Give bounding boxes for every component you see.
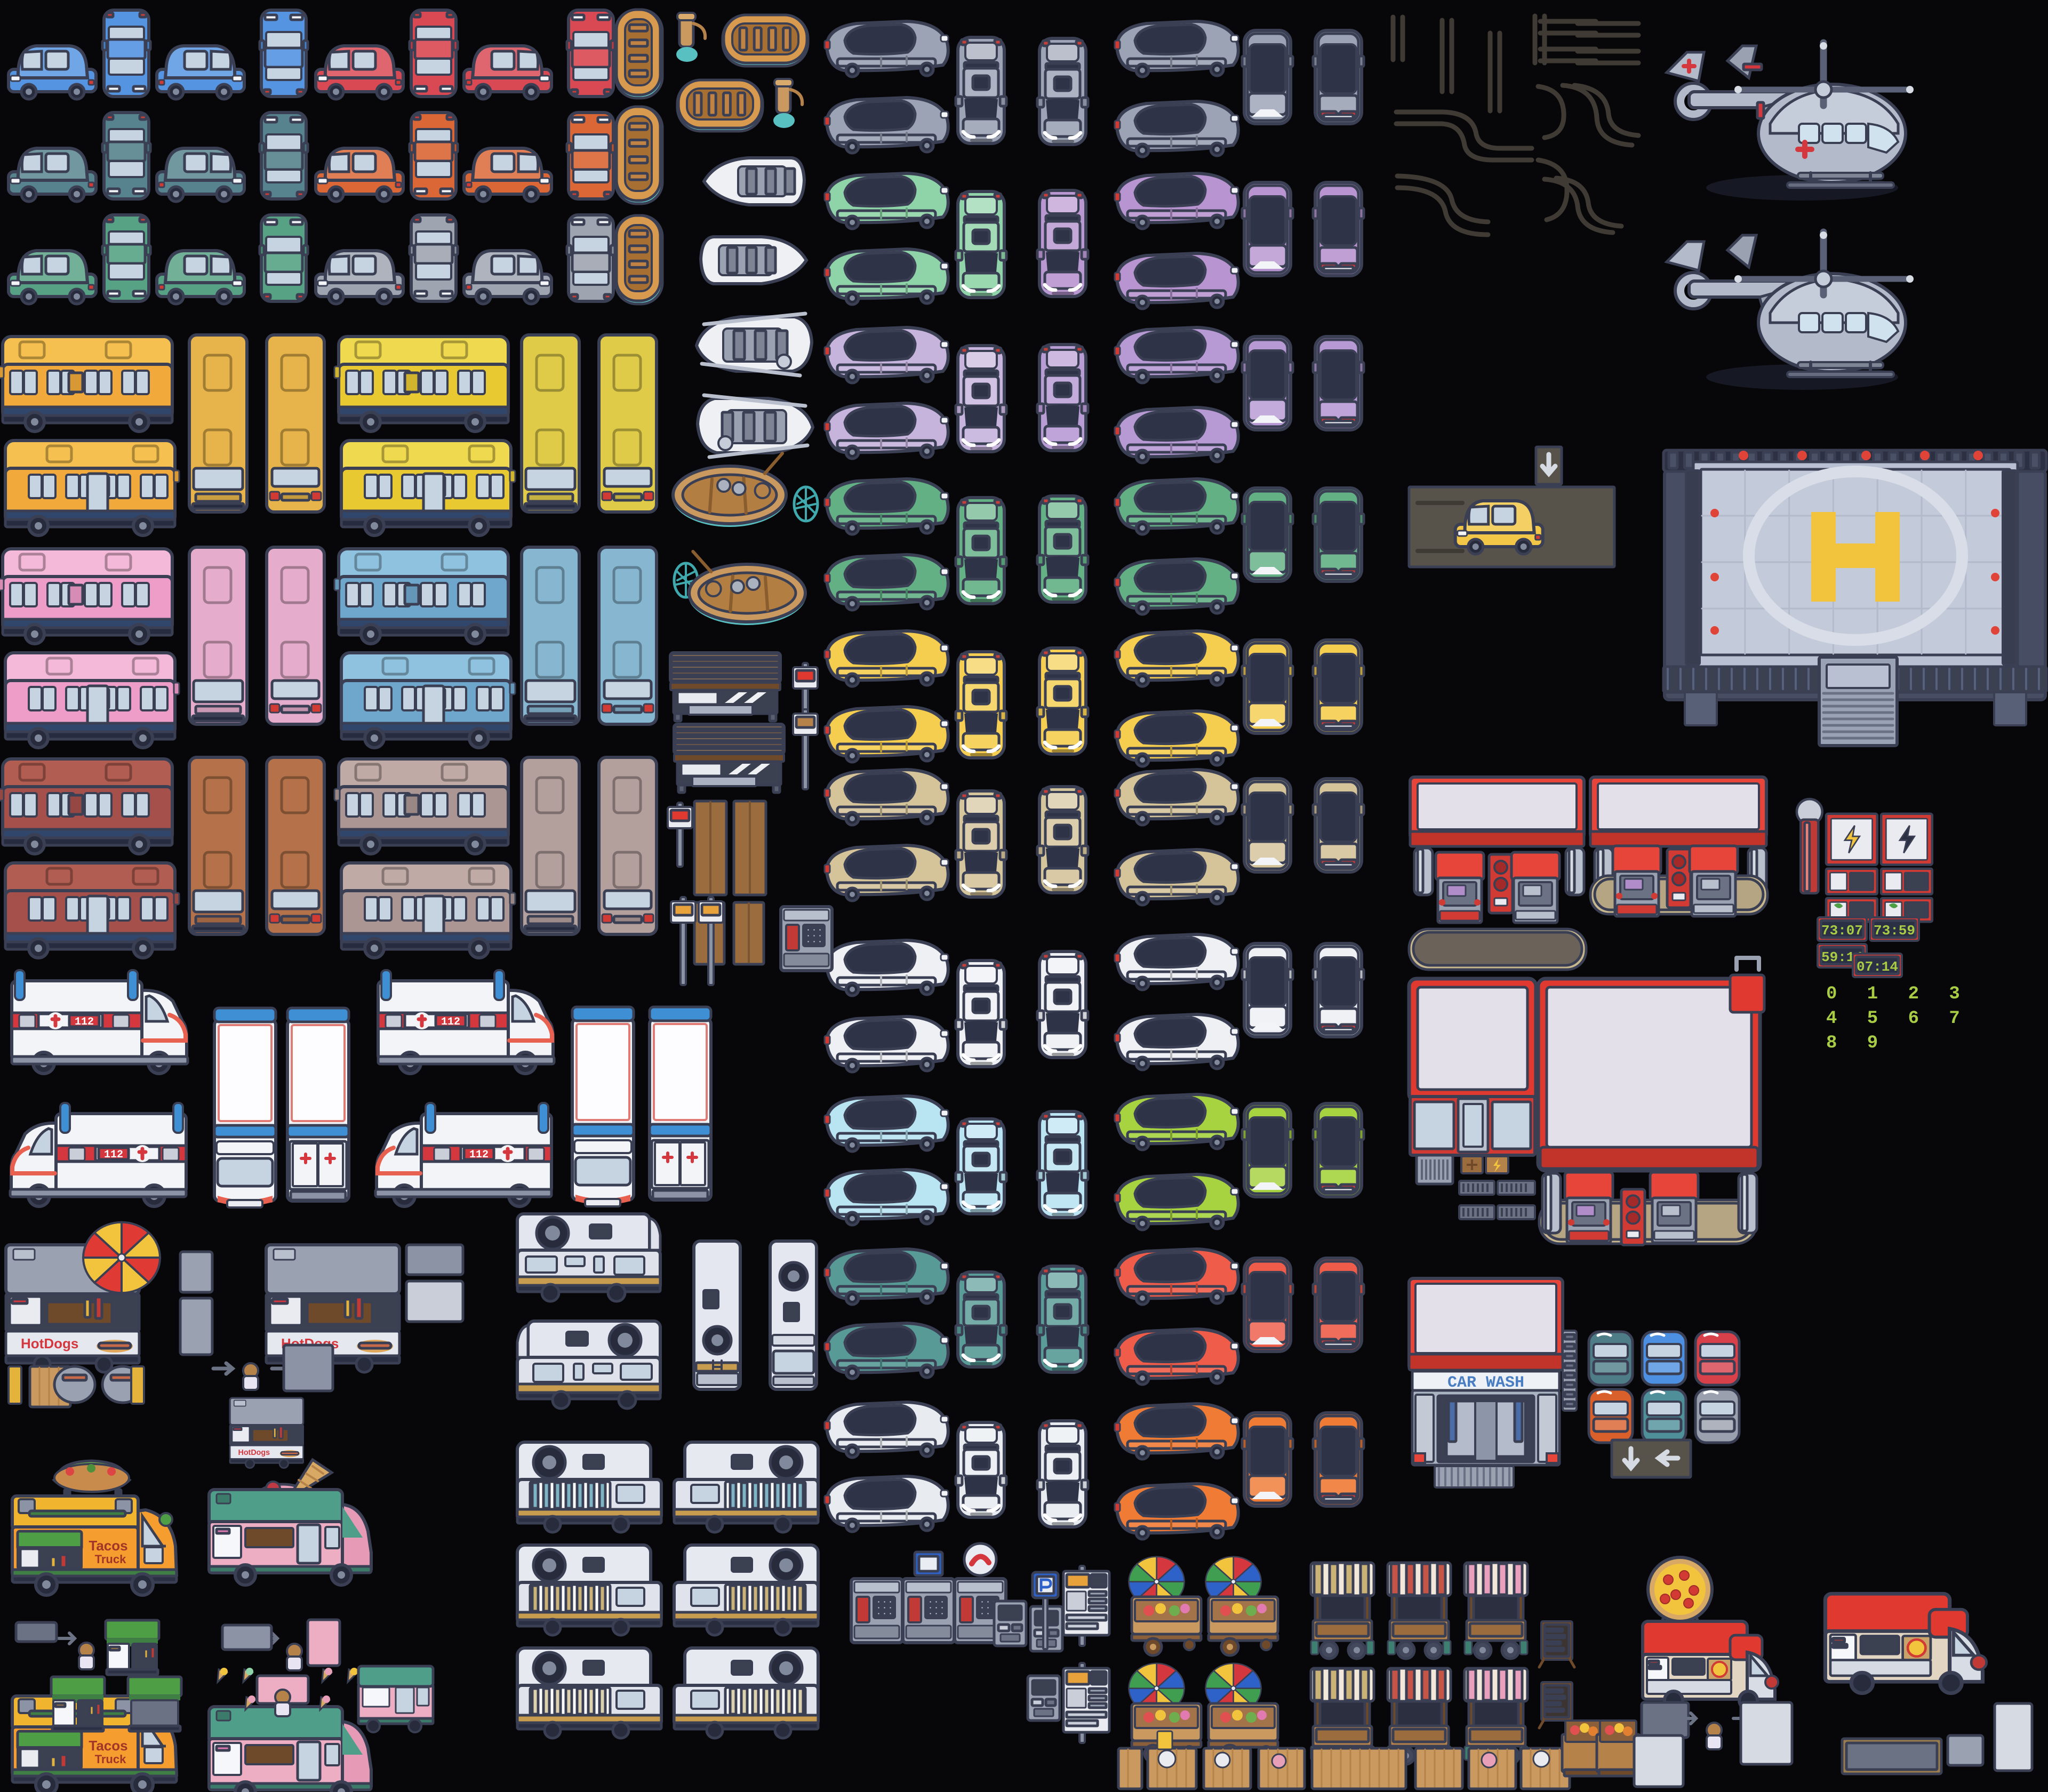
svg-text:73:59: 73:59 [1874, 923, 1915, 939]
svg-text:Truck: Truck [95, 1753, 126, 1766]
svg-text:Tacos: Tacos [89, 1738, 127, 1754]
svg-text:4 5 6 7: 4 5 6 7 [1826, 1009, 1970, 1029]
svg-text:112: 112 [441, 1016, 460, 1028]
svg-text:0 1 2 3: 0 1 2 3 [1826, 984, 1970, 1004]
svg-text:HotDogs: HotDogs [21, 1335, 78, 1351]
svg-text:112: 112 [104, 1149, 123, 1161]
svg-text:8 9: 8 9 [1826, 1033, 1887, 1053]
svg-text:73:07: 73:07 [1821, 923, 1863, 939]
svg-text:112: 112 [75, 1016, 94, 1028]
svg-text:Truck: Truck [95, 1553, 126, 1566]
svg-text:112: 112 [469, 1149, 489, 1161]
svg-text:07:14: 07:14 [1857, 959, 1898, 975]
svg-text:Tacos: Tacos [89, 1538, 127, 1554]
svg-text:HotDogs: HotDogs [238, 1449, 270, 1457]
